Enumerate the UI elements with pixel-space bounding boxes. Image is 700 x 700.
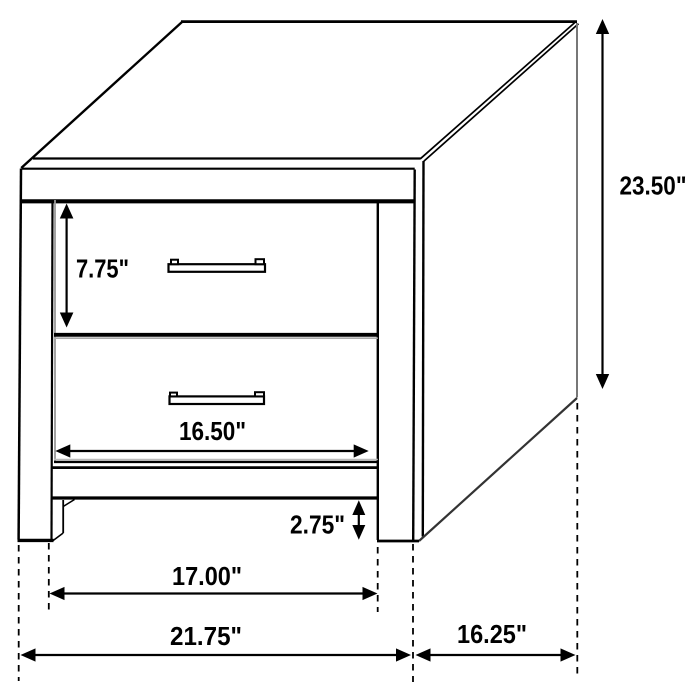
svg-text:16.50": 16.50": [179, 416, 246, 446]
svg-text:17.00": 17.00": [172, 561, 242, 591]
svg-text:21.75": 21.75": [170, 621, 242, 651]
svg-text:2.75": 2.75": [290, 510, 345, 540]
svg-text:7.75": 7.75": [76, 254, 129, 284]
svg-text:16.25": 16.25": [457, 619, 527, 649]
svg-text:23.50": 23.50": [620, 171, 687, 201]
